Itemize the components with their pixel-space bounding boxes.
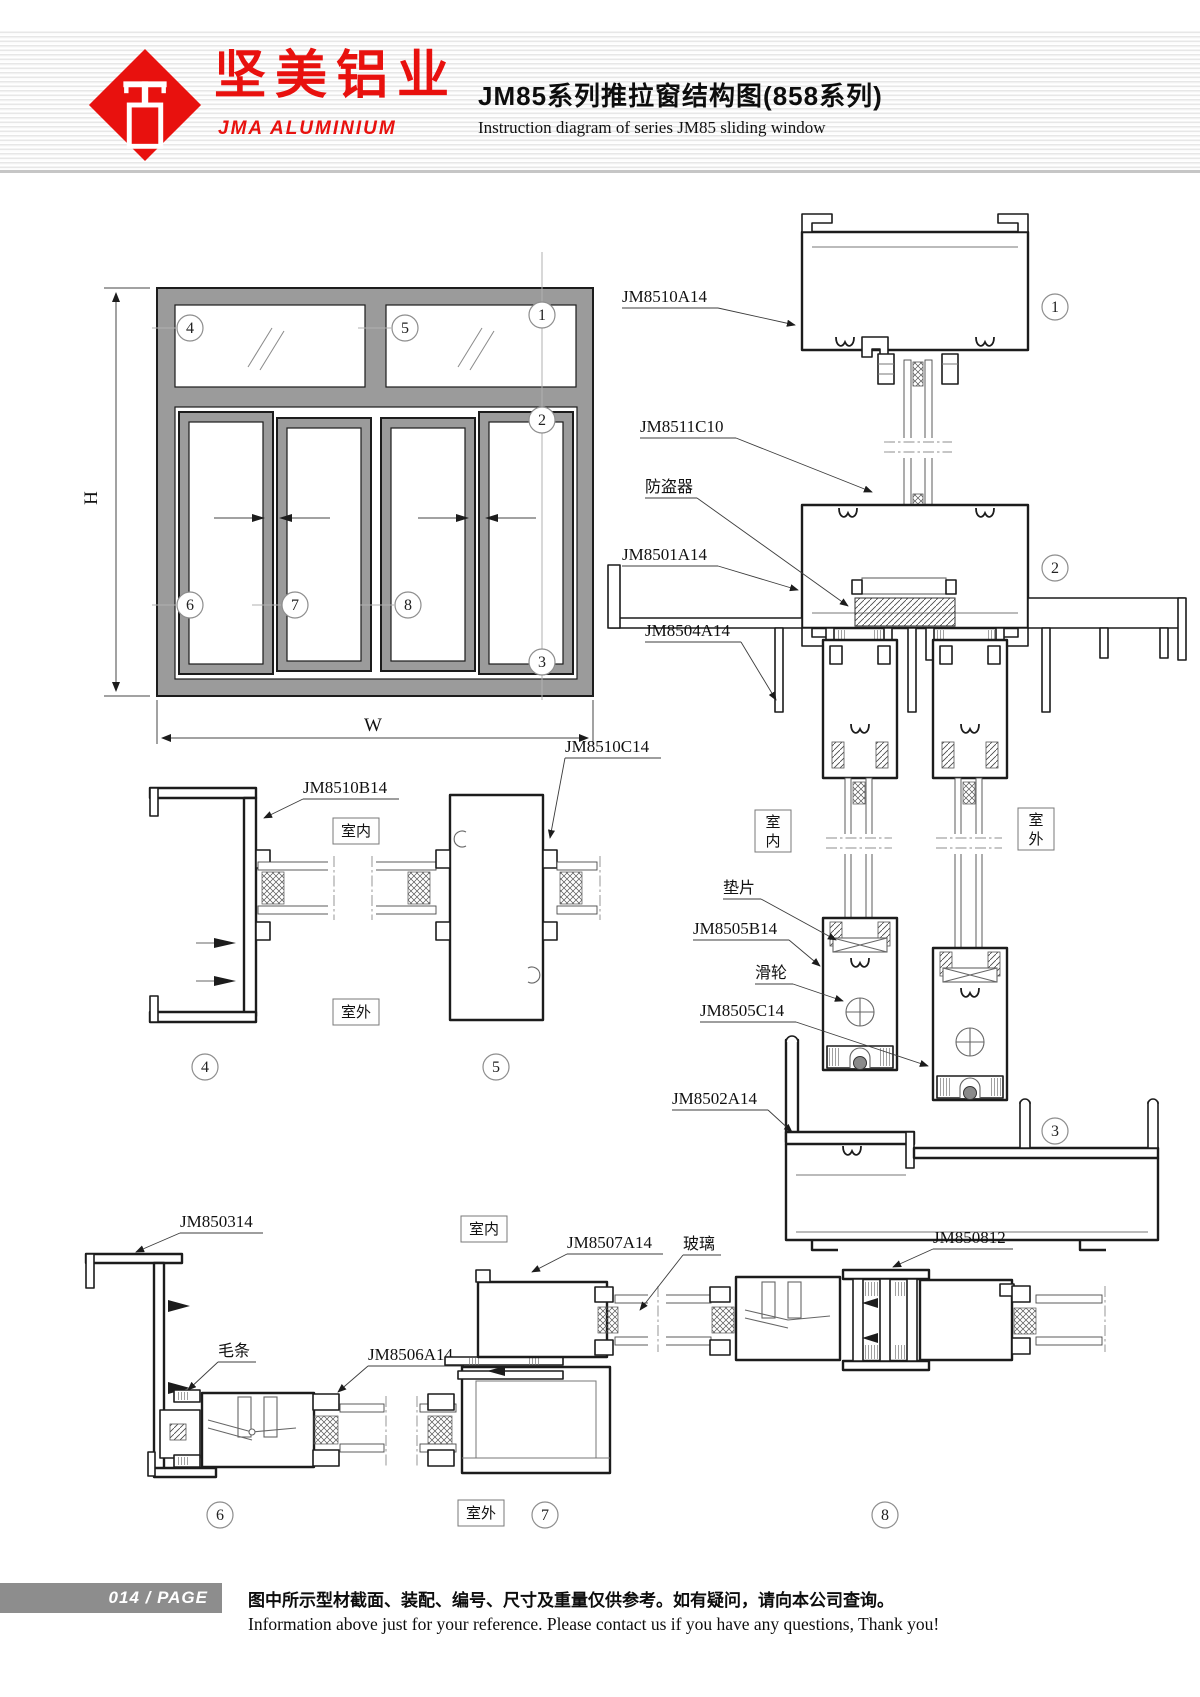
- svg-text:防盗器: 防盗器: [645, 478, 693, 496]
- elevation-circle-4: 4: [177, 315, 203, 341]
- header-divider: [0, 170, 1200, 173]
- svg-text:JM8505C14: JM8505C14: [700, 1001, 785, 1020]
- label-brush: 毛条: [188, 1342, 256, 1390]
- dim-w-label: W: [364, 715, 382, 736]
- dimension-height: H: [81, 288, 150, 696]
- page-subtitle: Instruction diagram of series JM85 slidi…: [478, 118, 883, 138]
- page-number-bar: 014 / PAGE: [0, 1583, 222, 1613]
- svg-text:室: 室: [765, 814, 780, 831]
- section-circle-1: 1: [1042, 294, 1068, 320]
- brand-name-chinese: 坚美铝业: [214, 50, 458, 102]
- outdoor-box-678: 室外: [458, 1500, 504, 1526]
- top-frame-profile: [802, 214, 1028, 357]
- outdoor-box-vertical: 室 外: [1018, 808, 1054, 850]
- anti-theft-block: [855, 598, 955, 626]
- svg-text:内: 内: [765, 833, 780, 850]
- elevation-circle-5: 5: [392, 315, 418, 341]
- svg-text:8: 8: [881, 1507, 889, 1524]
- middle-frame-profile: [802, 505, 1028, 646]
- label-jm850314: JM850314: [136, 1212, 263, 1252]
- page-number-label: 014 / PAGE: [109, 1588, 208, 1607]
- svg-text:8: 8: [404, 597, 412, 614]
- label-jm8506a14: JM8506A14: [338, 1345, 464, 1392]
- svg-text:JM8506A14: JM8506A14: [368, 1345, 454, 1364]
- section-circle-3: 3: [1042, 1118, 1068, 1144]
- svg-text:JM8510C14: JM8510C14: [565, 737, 650, 756]
- technical-drawing: H W: [0, 175, 1200, 1535]
- svg-text:6: 6: [216, 1507, 224, 1524]
- svg-text:外: 外: [1028, 831, 1043, 848]
- indoor-box-vertical: 室 内: [755, 810, 791, 852]
- window-elevation: H W: [81, 252, 593, 744]
- elevation-circle-8: 8: [395, 592, 421, 618]
- svg-text:JM8501A14: JM8501A14: [622, 545, 708, 564]
- glass-strip-45: [258, 855, 436, 921]
- roller-wheel: [964, 1087, 977, 1100]
- label-jm8504a14: JM8504A14: [645, 621, 776, 700]
- corner-step-assembly: [445, 1357, 610, 1473]
- vertical-section: 室 内 室 外 1 2 3 JM8510A14 JM8511C10 防盗器: [608, 214, 1186, 1250]
- svg-text:6: 6: [186, 597, 194, 614]
- svg-text:5: 5: [492, 1059, 500, 1076]
- svg-text:JM850812: JM850812: [933, 1228, 1006, 1247]
- roller-wheel: [854, 1057, 867, 1070]
- svg-text:4: 4: [186, 320, 194, 337]
- brand-name-english: JMA ALUMINIUM: [218, 118, 397, 140]
- dim-h-label: H: [81, 491, 102, 505]
- horizontal-section-45: JM8510B14 JM8510C14 室内 室外 4 5: [150, 737, 661, 1080]
- svg-text:毛条: 毛条: [218, 1342, 250, 1360]
- svg-text:垫片: 垫片: [723, 879, 755, 897]
- footer-note-english: Information above just for your referenc…: [248, 1614, 939, 1635]
- svg-text:JM8504A14: JM8504A14: [645, 621, 731, 640]
- meeting-sash-section: [736, 1270, 1105, 1370]
- title-block: JM85系列推拉窗结构图(858系列) Instruction diagram …: [478, 76, 883, 138]
- section-circle-6: 6: [207, 1502, 233, 1528]
- label-jm8507a14: JM8507A14: [532, 1233, 663, 1272]
- svg-text:室外: 室外: [466, 1505, 496, 1522]
- section-circle-7: 7: [532, 1502, 558, 1528]
- label-jm8510c14: JM8510C14: [550, 737, 661, 838]
- label-jm850812: JM850812: [893, 1228, 1013, 1267]
- label-jm8510a14: JM8510A14: [622, 287, 795, 325]
- elevation-circle-1: 1: [529, 302, 555, 328]
- side-frame-profile: [150, 788, 270, 1022]
- page-header: 坚美铝业 JMA ALUMINIUM JM85系列推拉窗结构图(858系列) I…: [0, 0, 1200, 175]
- outdoor-box-45: 室外: [333, 999, 379, 1025]
- jamb-profile: [476, 1270, 618, 1357]
- fixed-pane-left: [175, 305, 365, 387]
- glass-strip-upper: [615, 1286, 734, 1355]
- indoor-box-45: 室内: [333, 818, 379, 844]
- sash-stile-profile: [436, 795, 600, 1020]
- elevation-circle-6: 6: [177, 592, 203, 618]
- svg-text:4: 4: [201, 1059, 209, 1076]
- section-circle-2: 2: [1042, 555, 1068, 581]
- svg-text:室内: 室内: [469, 1221, 499, 1238]
- dimension-width: W: [157, 700, 593, 744]
- svg-text:室外: 室外: [341, 1004, 371, 1021]
- svg-text:JM8502A14: JM8502A14: [672, 1089, 758, 1108]
- horizontal-section-678: JM850314 毛条 JM8506A14: [86, 1212, 1105, 1528]
- page-title: JM85系列推拉窗结构图(858系列): [478, 76, 883, 113]
- svg-text:JM8511C10: JM8511C10: [640, 417, 723, 436]
- svg-text:JM8505B14: JM8505B14: [693, 919, 778, 938]
- svg-text:JM8510A14: JM8510A14: [622, 287, 708, 306]
- footer-note-chinese: 图中所示型材截面、装配、编号、尺寸及重量仅供参考。如有疑问，请向本公司查询。: [248, 1586, 894, 1611]
- svg-text:3: 3: [1051, 1123, 1059, 1140]
- elevation-circle-2: 2: [529, 407, 555, 433]
- svg-text:JM8507A14: JM8507A14: [567, 1233, 653, 1252]
- section-circle-5: 5: [483, 1054, 509, 1080]
- label-jm8505b14: JM8505B14: [693, 919, 820, 966]
- svg-text:滑轮: 滑轮: [755, 964, 787, 982]
- svg-text:2: 2: [1051, 560, 1059, 577]
- right-sash-section: [933, 640, 1007, 1100]
- svg-text:7: 7: [291, 597, 299, 614]
- svg-text:1: 1: [1051, 299, 1059, 316]
- svg-text:5: 5: [401, 320, 409, 337]
- lower-sash-lock-section: [160, 1390, 456, 1468]
- indoor-box-678: 室内: [461, 1216, 507, 1242]
- elevation-circle-3: 3: [529, 649, 555, 675]
- svg-text:JM850314: JM850314: [180, 1212, 253, 1231]
- section-circle-8: 8: [872, 1502, 898, 1528]
- label-jm8510b14: JM8510B14: [264, 778, 399, 818]
- svg-text:1: 1: [538, 307, 546, 324]
- jma-logo-icon: [86, 46, 204, 164]
- svg-text:2: 2: [538, 412, 546, 429]
- elevation-circle-7: 7: [282, 592, 308, 618]
- section-circle-4: 4: [192, 1054, 218, 1080]
- svg-text:室内: 室内: [341, 823, 371, 840]
- svg-text:室: 室: [1028, 812, 1043, 829]
- svg-text:玻璃: 玻璃: [683, 1235, 715, 1253]
- left-sash-section: [823, 640, 897, 1070]
- label-jm8502a14: JM8502A14: [672, 1089, 792, 1132]
- svg-text:3: 3: [538, 654, 546, 671]
- svg-text:JM8510B14: JM8510B14: [303, 778, 388, 797]
- svg-text:7: 7: [541, 1507, 549, 1524]
